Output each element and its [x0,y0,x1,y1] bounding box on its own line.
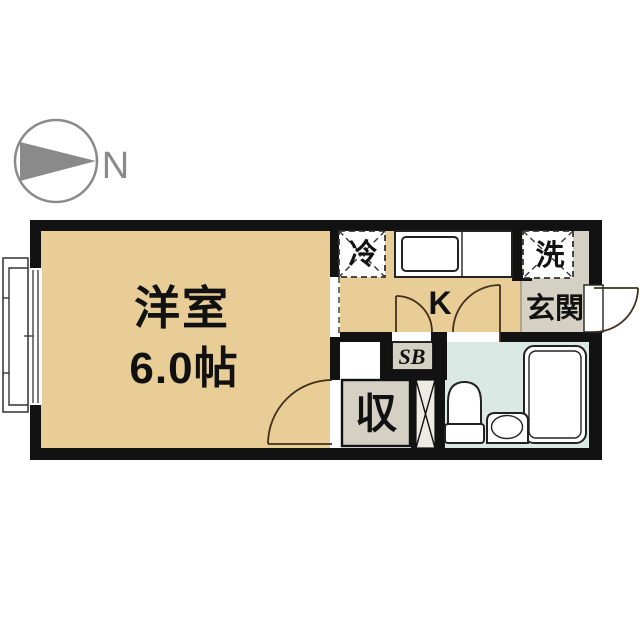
pipe-shaft [416,380,435,448]
floor-plan-page: 洋室 6.0帖 冷 K 洗 玄関 SB 収 N [0,0,640,640]
wall-kitchen-band-3 [500,332,589,342]
sink-icon [402,237,458,271]
wall-top [30,220,602,231]
bathtub-icon [524,346,586,443]
entry-door-opening [584,285,603,332]
western-room-size: 6.0帖 [129,344,238,393]
kitchen-counter [395,231,512,277]
wall-partition-mid [330,337,340,380]
toilet-icon [445,382,484,443]
western-room-floor [41,231,330,448]
toilet-tank [445,424,484,443]
wall-bottom [30,448,602,460]
wall-right [589,220,602,460]
toilet-bowl [448,382,481,424]
shoe-box-label: SB [399,344,426,369]
wall-bathroom-left [435,342,445,448]
basin-icon [487,413,528,443]
floor-plan-canvas: 洋室 6.0帖 冷 K 洗 玄関 SB 収 N [0,0,640,640]
north-label: N [102,145,130,187]
wall-shaft-left [411,380,416,448]
washer-label: 洗 [535,239,564,272]
balcony-outer [3,258,28,412]
bathtub-inner [529,351,581,438]
entrance-label: 玄関 [526,291,584,325]
western-room-label: 洋室 [134,282,230,334]
basin-bowl [492,416,523,439]
kitchen-label: K [428,285,451,321]
refrigerator-label: 冷 [348,238,377,271]
balcony-ledge [3,258,28,412]
storage-label: 収 [355,390,397,437]
